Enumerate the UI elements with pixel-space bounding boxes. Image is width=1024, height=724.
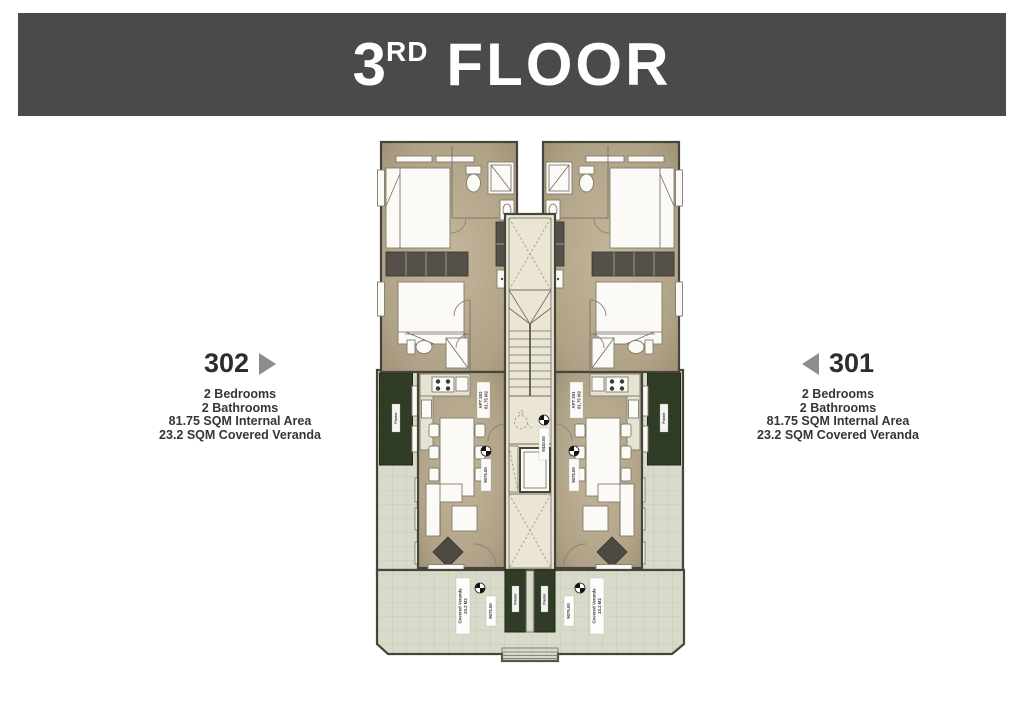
floor-ordinal: RD [386,38,428,66]
planter-label: Planter [662,412,666,424]
veranda-level-label: 9075.00 [488,603,493,619]
floor-plan: APT 302 81.75 M2 APT 301 81.75 M2 9410.0… [374,138,686,664]
arrow-left-icon [802,353,819,375]
level-marker-icon [475,583,485,593]
apt-302-area-value: 81.75 M2 [484,390,489,409]
unit-302-number: 302 [204,348,249,379]
floor-banner: 3 RD FLOOR [18,13,1006,116]
unit-301-details: 2 Bedrooms 2 Bathrooms 81.75 SQM Interna… [713,388,963,442]
unit-302-header: 302 [115,348,365,379]
veranda-area-value: 23.2 M2 [463,598,468,614]
veranda-area-value: 23.2 M2 [597,598,602,614]
unit-301-number: 301 [829,348,874,379]
apartment-301-plan [543,142,683,572]
unit-302-info: 302 2 Bedrooms 2 Bathrooms 81.75 SQM Int… [115,348,365,442]
apt-301-area-label: APT 301 [571,391,576,409]
planter-label: Planter [543,593,547,605]
floor-title: 3 RD FLOOR [353,35,672,95]
arrow-right-icon [259,353,276,375]
veranda-label: Covered Veranda [592,588,597,624]
level-marker-icon [569,446,579,456]
covered-veranda [377,570,684,661]
unit-302-details: 2 Bedrooms 2 Bathrooms 81.75 SQM Interna… [115,388,365,442]
detail-internal-area: 81.75 SQM Internal Area [115,415,365,429]
hall-level-label: 9410.00 [541,436,546,452]
planter-label: Planter [514,593,518,605]
apt-301-area-value: 81.75 M2 [577,390,582,409]
detail-veranda-area: 23.2 SQM Covered Veranda [115,429,365,443]
detail-internal-area: 81.75 SQM Internal Area [713,415,963,429]
living-level-label: 9075.00 [571,467,576,483]
level-marker-icon [481,446,491,456]
floor-word: FLOOR [446,35,671,95]
unit-301-info: 301 2 Bedrooms 2 Bathrooms 81.75 SQM Int… [713,348,963,442]
level-marker-icon [539,415,549,425]
apartment-302-plan [377,142,517,572]
central-core [505,214,555,570]
planter-label: Planter [394,412,398,424]
floor-number: 3 [353,35,386,95]
detail-bedrooms: 2 Bedrooms [713,388,963,402]
detail-veranda-area: 23.2 SQM Covered Veranda [713,429,963,443]
veranda-label: Covered Veranda [458,588,463,624]
apt-302-area-label: APT 302 [478,391,483,409]
living-level-label: 9075.00 [483,467,488,483]
detail-bedrooms: 2 Bedrooms [115,388,365,402]
level-marker-icon [575,583,585,593]
veranda-level-label: 9075.00 [566,603,571,619]
detail-bathrooms: 2 Bathrooms [713,402,963,416]
unit-301-header: 301 [713,348,963,379]
detail-bathrooms: 2 Bathrooms [115,402,365,416]
